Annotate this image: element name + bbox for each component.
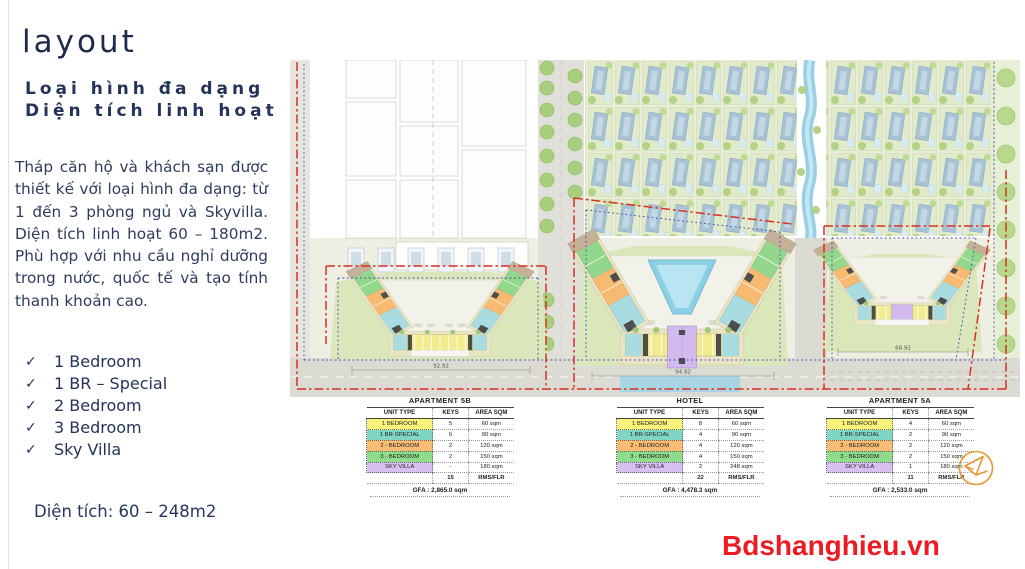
table-row: 1 BR-SPECIAL490 sqm [617, 430, 765, 441]
list-item: ✓ 3 Bedroom [25, 418, 167, 437]
cell: 4 [683, 451, 718, 462]
cell: 90 sqm [928, 430, 974, 441]
list-item: ✓ 1 Bedroom [25, 352, 167, 371]
table-total-row: 15RMS/FLR [367, 473, 515, 484]
west-road [290, 60, 310, 397]
table-row: 1 BR-SPECIAL290 sqm [827, 430, 975, 441]
cell: - [433, 462, 468, 473]
subtitle: Loại hình đa dạng Diện tích linh hoạt [25, 78, 278, 122]
list-item: ✓ 1 BR – Special [25, 374, 167, 393]
cell: 5 [433, 419, 468, 430]
cell: 90 sqm [468, 430, 514, 441]
table-title: APARTMENT 5B [366, 396, 514, 405]
cell: 180 sqm [468, 462, 514, 473]
cell: 120 sqm [718, 440, 764, 451]
column-header: KEYS [433, 408, 468, 419]
cell: RMS/FLR [468, 473, 514, 484]
table-row: 3 - BEDROOM2150 sqm [367, 451, 515, 462]
cell: 2 [433, 451, 468, 462]
dimension-label-5a: 68.92 [895, 346, 911, 352]
cell: 4 [683, 430, 718, 441]
cell: 2 [683, 462, 718, 473]
cell [617, 473, 683, 484]
cell: 2 [433, 440, 468, 451]
cell: 2 [893, 440, 928, 451]
cell: 2 [893, 430, 928, 441]
table-row: 1 BEDROOM460 sqm [827, 419, 975, 430]
subtitle-line-1: Loại hình đa dạng [25, 78, 278, 100]
unit-table-apartment-5b: APARTMENT 5B UNIT TYPE KEYS AREA SQM 1 B… [366, 396, 514, 497]
cell: RMS/FLR [718, 473, 764, 484]
cell: 2 - BEDROOM [367, 440, 433, 451]
cell [367, 473, 433, 484]
cell: 6 [433, 430, 468, 441]
table-title: APARTMENT 5A [826, 396, 974, 405]
table-title: HOTEL [616, 396, 764, 405]
cell: 90 sqm [718, 430, 764, 441]
cell: 150 sqm [718, 451, 764, 462]
cell: 2 - BEDROOM [827, 440, 893, 451]
dimension-label-hotel: 94.92 [675, 370, 691, 376]
slide-edge-line [8, 0, 9, 569]
check-icon: ✓ [25, 442, 41, 458]
cell: 2 [893, 451, 928, 462]
column-header: UNIT TYPE [367, 408, 433, 419]
table-row: SKY VILLA-180 sqm [367, 462, 515, 473]
cell: 1 BR-SPECIAL [827, 430, 893, 441]
list-item: ✓ Sky Villa [25, 440, 167, 459]
column-header: UNIT TYPE [617, 408, 683, 419]
master-plan-drawing: 92.92 94.92 68.92 [290, 60, 1020, 397]
cell: 1 BEDROOM [827, 419, 893, 430]
table-row: SKY VILLA2248 sqm [617, 462, 765, 473]
list-item-label: 1 Bedroom [54, 352, 142, 371]
list-item-label: 1 BR – Special [54, 374, 167, 393]
column-header: KEYS [683, 408, 718, 419]
cell: 60 sqm [468, 419, 514, 430]
cell: 4 [683, 440, 718, 451]
gfa-total: GFA : 4,478.3 sqm [620, 484, 760, 497]
cell: 2 - BEDROOM [617, 440, 683, 451]
list-item-label: 3 Bedroom [54, 418, 142, 437]
table-row: 1 BEDROOM860 sqm [617, 419, 765, 430]
unit-type-checklist: ✓ 1 Bedroom ✓ 1 BR – Special ✓ 2 Bedroom… [25, 352, 167, 462]
cell: 120 sqm [468, 440, 514, 451]
cell: 150 sqm [468, 451, 514, 462]
table-row: 3 - BEDROOM4150 sqm [617, 451, 765, 462]
list-item: ✓ 2 Bedroom [25, 396, 167, 415]
cell: 1 BR-SPECIAL [617, 430, 683, 441]
table-total-row: 22RMS/FLR [617, 473, 765, 484]
column-header: AREA SQM [718, 408, 764, 419]
page-title: layout [22, 24, 137, 60]
cell: 8 [683, 419, 718, 430]
table-row: 2 - BEDROOM4120 sqm [617, 440, 765, 451]
area-range-note: Diện tích: 60 – 248m2 [34, 502, 216, 521]
dimension-label-5b: 92.92 [433, 364, 449, 370]
cell: SKY VILLA [617, 462, 683, 473]
cell: 4 [893, 419, 928, 430]
column-header: UNIT TYPE [827, 408, 893, 419]
cell: 11 [893, 473, 928, 484]
cell: 1 BEDROOM [367, 419, 433, 430]
slide: layout Loại hình đa dạng Diện tích linh … [0, 0, 1025, 569]
check-icon: ✓ [25, 376, 41, 392]
cell: 60 sqm [928, 419, 974, 430]
list-item-label: Sky Villa [54, 440, 121, 459]
cell: 1 BEDROOM [617, 419, 683, 430]
cell: 15 [433, 473, 468, 484]
cell: 60 sqm [718, 419, 764, 430]
cell [827, 473, 893, 484]
cell: 1 [893, 462, 928, 473]
table-row: 1 BEDROOM560 sqm [367, 419, 515, 430]
sky-villa-block [892, 305, 913, 321]
check-icon: ✓ [25, 354, 41, 370]
developer-logo-icon [952, 444, 1000, 492]
cell: 3 - BEDROOM [617, 451, 683, 462]
table-row: 1 BR-SPECIAL690 sqm [367, 430, 515, 441]
cell: 3 - BEDROOM [827, 451, 893, 462]
cell: 248 sqm [718, 462, 764, 473]
cell: 1 BR-SPECIAL [367, 430, 433, 441]
cell: SKY VILLA [367, 462, 433, 473]
check-icon: ✓ [25, 420, 41, 436]
column-header: AREA SQM [928, 408, 974, 419]
cell: SKY VILLA [827, 462, 893, 473]
column-header: AREA SQM [468, 408, 514, 419]
villa-grid-east [826, 60, 994, 236]
table-row: 2 - BEDROOM2120 sqm [367, 440, 515, 451]
villa-grid-west [585, 60, 797, 236]
column-header: KEYS [893, 408, 928, 419]
cell: 22 [683, 473, 718, 484]
watermark-text: Bdshanghieu.vn [722, 530, 940, 562]
cell: 3 - BEDROOM [367, 451, 433, 462]
check-icon: ✓ [25, 398, 41, 414]
description-paragraph: Tháp căn hộ và khách sạn được thiết kế v… [15, 156, 268, 312]
list-item-label: 2 Bedroom [54, 396, 142, 415]
gfa-total: GFA : 2,533.0 sqm [830, 484, 970, 497]
subtitle-line-2: Diện tích linh hoạt [25, 100, 278, 122]
unit-table-hotel: HOTEL UNIT TYPE KEYS AREA SQM 1 BEDROOM8… [616, 396, 764, 497]
gfa-total: GFA : 2,865.0 sqm [370, 484, 510, 497]
